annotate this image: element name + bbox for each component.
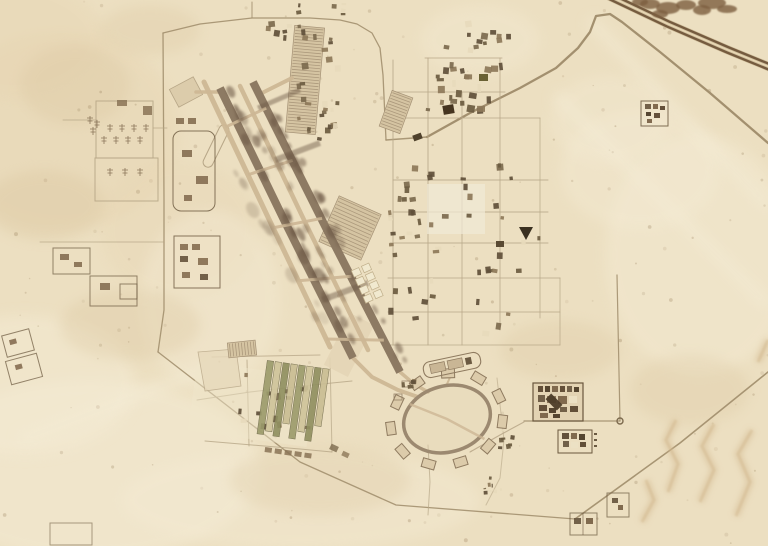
desert-speckle [29,278,31,280]
compound-building [660,106,665,110]
compound-building [647,119,652,123]
desert-speckle [402,35,405,38]
desert-speckle [368,9,371,12]
building [273,30,280,37]
compound-building [198,258,208,265]
compound-building [184,195,192,201]
desert-speckle [667,31,671,35]
desert-speckle [733,65,737,69]
building [500,216,504,220]
desert-speckle [101,231,103,233]
compound-building [182,150,192,157]
compound-building [563,441,569,447]
desert-patch [100,5,200,55]
desert-speckle [396,176,399,179]
desert-speckle [565,300,569,304]
camp-building [274,448,282,454]
apron [427,184,485,234]
building [297,116,301,120]
desert-speckle [635,263,637,265]
desert-speckle [618,339,622,343]
building [330,108,333,112]
aircraft-pad [497,415,508,429]
landmark-building [479,74,488,81]
desert-speckle [331,99,334,102]
building [393,288,398,294]
desert-speckle [44,179,48,183]
desert-speckle [200,487,203,490]
compound-building [560,386,565,392]
desert-speckle [374,168,377,171]
desert-speckle [362,461,363,462]
desert-speckle [501,411,504,414]
desert-speckle [714,447,718,451]
antenna-building [143,106,152,115]
building [487,96,491,103]
building [300,82,306,86]
compound-building [74,262,82,267]
desert-speckle [553,138,555,140]
desert-speckle [673,343,676,346]
camp-building [284,450,292,456]
camp-building [304,453,312,459]
vegetation-blob [652,10,668,18]
desert-speckle [735,403,737,405]
compound-building [571,433,577,439]
desert-speckle [168,216,172,220]
desert-speckle [217,511,219,513]
building [465,20,472,27]
desert-speckle [290,516,293,519]
desert-speckle [510,493,514,497]
building [484,491,488,495]
desert-speckle [485,382,488,385]
building [490,30,496,35]
desert-speckle [603,9,606,12]
desert-speckle [752,393,754,395]
building [313,34,317,40]
compound-building [580,442,586,447]
desert-speckle [285,15,287,17]
compound-building [60,254,69,260]
compound-building [182,272,190,278]
desert-speckle [609,149,611,151]
desert-speckle [97,358,99,360]
building [460,68,465,74]
antenna-building [117,100,127,106]
desert-speckle [25,292,27,294]
desert-speckle [764,129,767,132]
desert-speckle [194,145,198,149]
building [463,184,467,190]
desert-speckle [724,533,728,537]
desert-speckle [149,179,153,183]
building [433,250,440,254]
camp-building [294,451,302,457]
building [328,41,333,45]
compound-building [574,518,581,524]
desert-speckle [179,182,182,185]
building [241,419,247,423]
desert-speckle [99,344,102,347]
building [440,100,444,105]
desert-speckle [375,92,378,95]
desert-speckle [128,341,130,343]
building [238,409,242,415]
building [484,66,492,73]
building [307,127,311,131]
building [335,65,341,72]
desert-speckle [168,222,169,223]
desert-speckle [762,154,766,158]
building [323,107,328,111]
building [468,47,474,53]
desert-speckle [210,229,212,231]
building [287,24,292,28]
desert-speckle [199,53,203,57]
compound-building [571,442,578,448]
building [493,203,499,209]
building [473,45,479,50]
desert-speckle [642,292,645,295]
compound-building [612,498,618,503]
desert-speckle [694,433,696,435]
desert-speckle [555,375,557,377]
landmark-building [442,104,454,115]
building [477,106,485,112]
compound-building [538,386,543,392]
desert-speckle [691,237,693,239]
compound-building [200,274,208,280]
desert-speckle [593,85,594,86]
building [427,174,433,180]
building [406,231,412,235]
desert-speckle [19,314,21,316]
building [476,299,480,305]
desert-speckle [562,75,564,77]
desert-speckle [760,371,764,375]
compound-building [176,118,184,124]
desert-speckle [279,349,282,352]
desert-speckle [431,144,433,146]
building [467,194,472,200]
aircraft-pad [386,421,397,435]
desert-speckle [60,451,63,454]
desert-speckle [607,187,610,190]
building [443,67,449,74]
desert-speckle [372,465,374,467]
desert-speckle [152,464,154,466]
building [481,33,489,40]
building [482,331,489,337]
compound-building [552,386,558,392]
compound-f [533,383,583,421]
compound-building [579,434,585,440]
desert-speckle [351,517,354,520]
building [498,446,502,449]
desert-speckle [93,230,96,233]
desert-speckle [111,465,114,468]
building [488,483,491,487]
building [430,294,436,299]
building [401,382,405,388]
compound-building [569,396,577,403]
compound-building [645,104,651,109]
desert-speckle [380,251,383,254]
desert-speckle [350,186,353,189]
building [497,252,503,259]
desert-speckle [569,436,570,437]
compound-building [196,176,208,184]
compound-building [586,518,593,524]
desert-speckle [272,281,276,285]
building [388,308,393,315]
desert-speckle [380,96,384,100]
desert-speckle [240,254,242,256]
desert-speckle [464,538,468,542]
compound-building [574,387,579,392]
desert-speckle [88,105,92,109]
building [301,62,308,69]
building [412,165,419,171]
building [335,101,339,105]
building [296,10,301,14]
building [489,476,492,479]
compound-building [538,395,545,402]
building [509,176,513,180]
building [421,299,428,305]
compound-building [653,104,658,109]
compound-tick [594,433,597,435]
desert-speckle [635,455,638,458]
compound-building [646,112,651,116]
desert-speckle [156,286,159,289]
desert-speckle [601,108,604,111]
building [297,25,301,29]
desert-speckle [729,219,731,221]
desert-speckle [338,470,341,473]
desert-speckle [492,199,495,202]
compound-building [618,505,623,510]
camp-building [265,447,273,453]
desert-speckle [442,334,445,337]
building [501,429,506,431]
building [506,34,511,40]
compound-building [188,118,196,124]
desert-speckle [353,97,356,100]
building [342,3,346,5]
building [412,316,419,321]
desert-speckle [453,246,454,247]
desert-speckle [437,513,441,517]
desert-speckle [353,49,355,51]
desert-speckle [99,91,102,94]
building [460,101,464,106]
desert-speckle [378,260,382,264]
desert-speckle [82,300,85,303]
building [456,90,462,98]
building [341,13,346,15]
building [426,108,431,112]
desert-speckle [304,474,308,478]
building [500,488,502,491]
building [495,323,501,330]
desert-speckle [274,520,277,523]
building [491,66,498,72]
desert-speckle [475,257,478,260]
building [485,266,491,273]
desert-speckle [660,461,662,463]
building [341,8,346,12]
building [390,232,395,236]
compound-building [654,113,660,118]
desert-speckle [687,499,689,501]
vegetation-blob [676,0,696,10]
desert-speckle [554,268,557,271]
compound-building [192,244,200,250]
desert-speckle [623,84,626,87]
building [477,84,481,92]
desert-speckle [77,108,80,111]
desert-speckle [634,481,637,484]
desert-speckle [592,300,594,302]
desert-speckle [136,190,140,194]
desert-speckle [202,222,204,224]
vegetation-blob [717,5,737,13]
building [333,123,338,129]
desert-speckle [96,405,100,409]
desert-speckle [305,305,308,308]
desert-speckle [135,104,137,106]
desert-speckle [490,516,492,518]
ribbed-apron [227,340,256,358]
desert-speckle [571,180,573,182]
desert-speckle [760,179,763,182]
building [322,101,328,107]
desert-speckle [408,519,411,522]
desert-speckle [216,125,219,128]
building [301,97,306,103]
compound-building [560,407,567,412]
compound-building [570,406,578,412]
building [401,197,407,202]
compound-building [180,256,188,262]
compound-building [562,433,569,439]
building [397,196,401,202]
compound-building [553,414,560,418]
desert-speckle [491,300,494,303]
building [298,3,301,7]
desert-speckle [373,100,376,103]
desert-speckle [536,364,537,365]
building [409,197,416,202]
compound-building [180,244,188,250]
desert-speckle [280,265,282,267]
building [438,86,445,93]
desert-patch [20,45,130,125]
desert-speckle [548,467,549,468]
desert-speckle [614,125,616,127]
building [244,373,248,377]
compound-tick [594,445,597,447]
building [499,438,504,443]
building [467,33,471,37]
desert-speckle [3,513,7,517]
building [282,29,287,33]
satellite-image: Satellite aerial view of a desert airbas… [0,0,768,546]
desert-speckle [251,440,253,442]
desert-speckle [558,1,562,5]
building [466,105,475,113]
building [449,62,453,68]
building [450,99,457,104]
desert-speckle [546,489,549,492]
desert-patch [230,445,410,515]
building [516,269,522,273]
desert-speckle [509,348,513,352]
desert-speckle [424,521,427,524]
desert-speckle [14,232,18,236]
building [537,236,540,240]
building [492,484,493,488]
building [498,163,501,167]
building [476,39,482,44]
building [388,215,393,221]
desert-speckle [70,407,71,408]
building [483,41,487,45]
building [460,177,465,180]
desert-speckle [272,252,275,255]
building [510,435,515,440]
desert-speckle [223,109,226,112]
building [332,4,337,9]
desert-speckle [513,323,516,326]
desert-patch [60,290,200,360]
desert-speckle [83,1,85,3]
desert-speckle [669,298,673,302]
desert-speckle [562,490,564,492]
building [411,210,416,216]
building [305,102,312,106]
desert-speckle [291,510,293,512]
building [283,35,287,41]
building [329,37,333,41]
desert-speckle [117,328,121,332]
building [506,444,511,450]
desert-speckle [519,181,520,182]
building [411,380,416,384]
building [302,35,308,41]
desert-speckle [267,56,271,60]
building [469,92,477,99]
building [521,240,526,245]
desert-speckle [612,151,614,153]
building [319,113,324,117]
building [477,270,481,276]
building [326,56,333,62]
desert-speckle [100,4,103,7]
building [497,34,502,39]
building [436,75,440,79]
building [466,214,471,218]
desert-speckle [519,445,520,446]
desert-speckle [467,71,468,72]
desert-speckle [663,247,667,251]
desert-speckle [648,225,652,229]
compound-tick [594,439,597,441]
building [437,78,444,81]
compound-building [567,386,572,392]
